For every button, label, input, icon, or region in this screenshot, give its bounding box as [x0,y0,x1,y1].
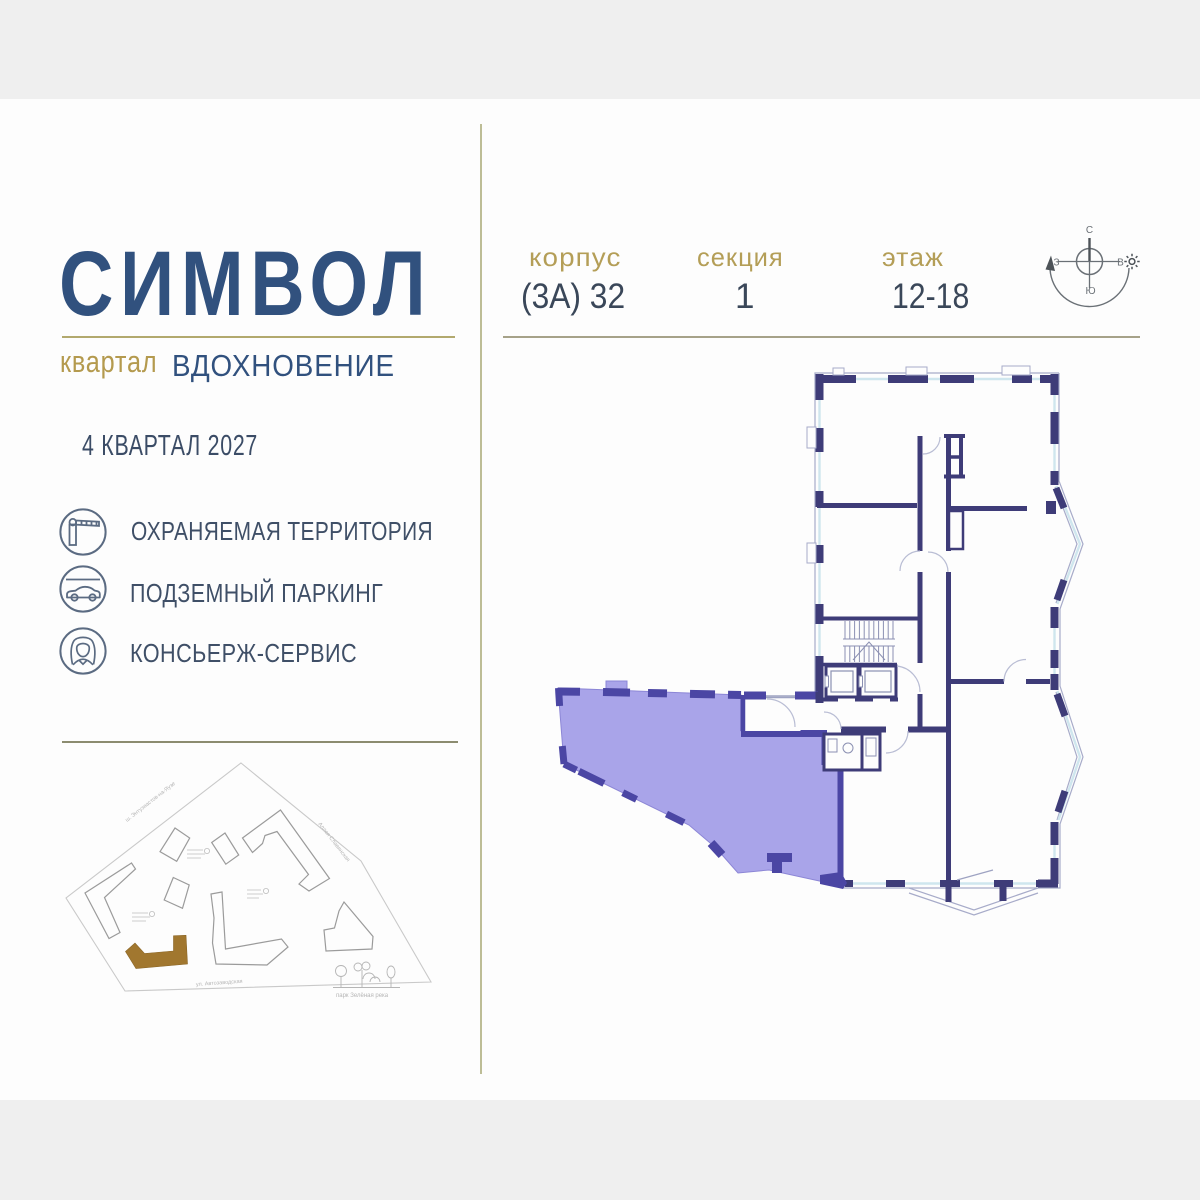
svg-text:ш. Энтузиастов-на-Яузе: ш. Энтузиастов-на-Яузе [125,781,177,824]
svg-text:Ю: Ю [1085,286,1095,297]
svg-text:Аллея Славянская: Аллея Славянская [316,822,350,864]
svg-text:З: З [1053,258,1059,269]
svg-text:С: С [1086,225,1093,236]
svg-text:ул. Автозаводская: ул. Автозаводская [196,979,243,988]
svg-text:парк Зелёная река: парк Зелёная река [336,993,389,999]
svg-text:В: В [1117,258,1124,269]
